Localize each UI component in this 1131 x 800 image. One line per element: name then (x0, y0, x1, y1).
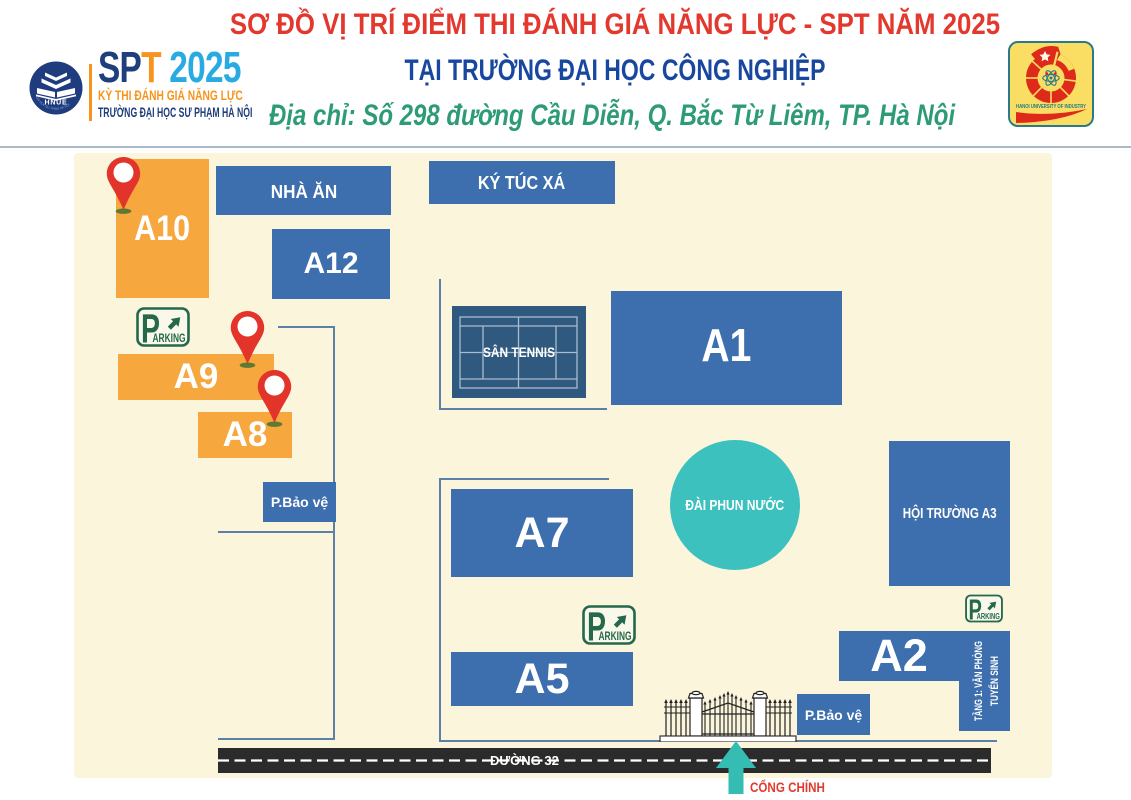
svg-text:ARKING: ARKING (153, 333, 186, 345)
svg-text:ARKING: ARKING (599, 631, 632, 643)
svg-text:HANOI UNIVERSITY OF INDUSTRY: HANOI UNIVERSITY OF INDUSTRY (1016, 104, 1086, 110)
svg-text:ARKING: ARKING (977, 612, 1000, 621)
svg-text:TUYỂN SINH: TUYỂN SINH (988, 656, 1001, 706)
svg-text:TẦNG 1: VĂN PHÒNG: TẦNG 1: VĂN PHÒNG (972, 641, 985, 721)
svg-text:ĐƯỜNG 32: ĐƯỜNG 32 (490, 753, 559, 768)
svg-text:SÂN TENNIS: SÂN TENNIS (483, 345, 555, 360)
